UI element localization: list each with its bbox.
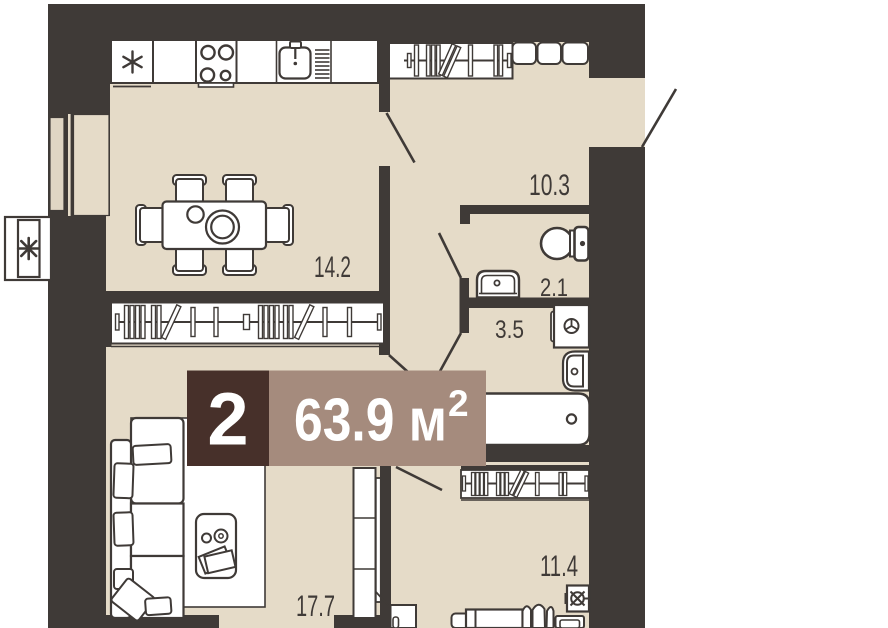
svg-text:63.9 м: 63.9 м [294, 387, 447, 454]
svg-text:10.3: 10.3 [529, 169, 570, 202]
svg-text:2.1: 2.1 [540, 274, 568, 302]
svg-text:2: 2 [207, 378, 248, 461]
svg-text:2: 2 [448, 383, 469, 424]
svg-text:14.2: 14.2 [314, 251, 351, 284]
svg-text:11.4: 11.4 [540, 550, 578, 583]
svg-text:3.5: 3.5 [495, 316, 524, 344]
svg-text:17.7: 17.7 [296, 590, 335, 623]
